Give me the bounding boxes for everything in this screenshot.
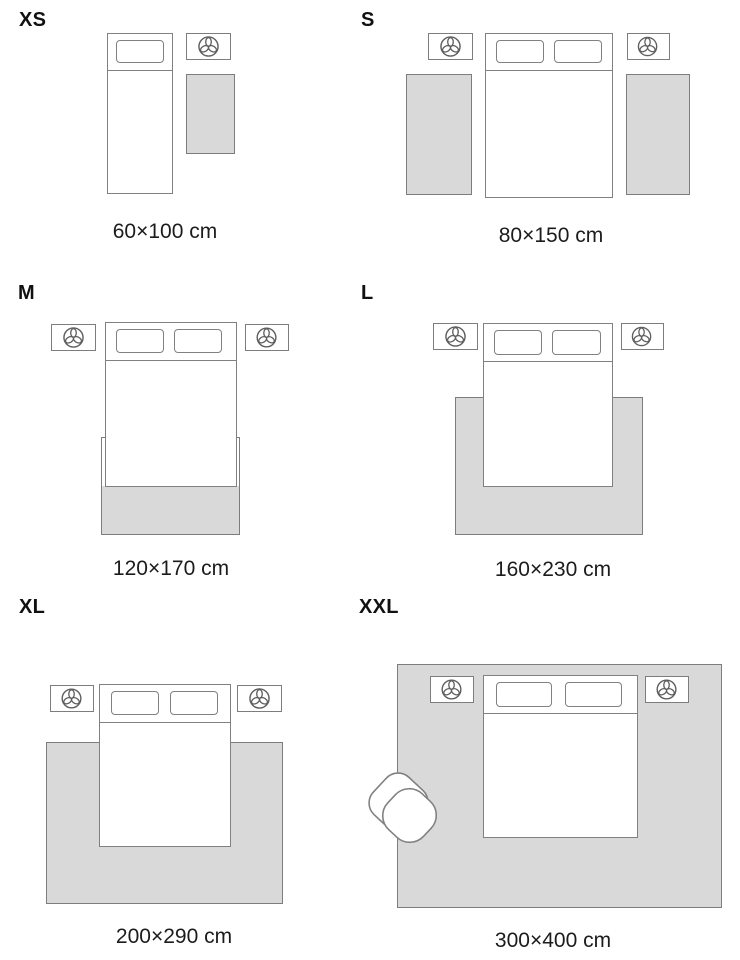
- bed-headboard: [106, 323, 236, 361]
- nightstand: [50, 685, 94, 712]
- pillow: [554, 40, 602, 63]
- dimension-label-xxl: 300×400 cm: [453, 929, 653, 952]
- rug-s-right: [626, 74, 690, 195]
- plant-icon: [622, 323, 663, 350]
- dimension-label-xl: 200×290 cm: [74, 925, 274, 948]
- rug-size-guide: XS 60×100 cm S 80×150 cm: [0, 0, 740, 960]
- dimension-label-l: 160×230 cm: [453, 558, 653, 581]
- size-label-m: M: [18, 281, 35, 305]
- bed-headboard: [486, 34, 612, 71]
- plant-icon: [51, 685, 93, 712]
- bed-headboard: [484, 676, 637, 714]
- pillow: [116, 329, 164, 353]
- pillow: [565, 682, 622, 707]
- bed-double: [105, 322, 237, 487]
- armchair: [352, 756, 452, 856]
- rug-s-left: [406, 74, 472, 195]
- dimension-label-m: 120×170 cm: [71, 557, 271, 580]
- pillow: [496, 682, 552, 707]
- pillow: [111, 691, 159, 715]
- dimension-label-s: 80×150 cm: [451, 224, 651, 247]
- pillow: [496, 40, 544, 63]
- plant-icon: [431, 676, 473, 703]
- plant-icon: [187, 33, 230, 60]
- plant-icon: [429, 33, 472, 60]
- bed-double: [485, 33, 613, 198]
- nightstand: [627, 33, 670, 60]
- nightstand: [428, 33, 473, 60]
- nightstand: [645, 676, 689, 703]
- bed-double: [483, 675, 638, 838]
- bed-double: [99, 684, 231, 847]
- size-label-l: L: [361, 281, 374, 305]
- pillow: [494, 330, 542, 355]
- dimension-label-xs: 60×100 cm: [65, 220, 265, 243]
- bed-headboard: [484, 324, 612, 362]
- pillow: [116, 40, 164, 63]
- nightstand: [51, 324, 96, 351]
- plant-icon: [646, 676, 688, 703]
- bed-headboard: [108, 34, 172, 71]
- bed-double: [483, 323, 613, 487]
- pillow: [170, 691, 218, 715]
- nightstand: [245, 324, 289, 351]
- nightstand: [430, 676, 474, 703]
- plant-icon: [246, 324, 288, 351]
- nightstand: [237, 685, 282, 712]
- size-label-s: S: [361, 8, 375, 32]
- rug-xs: [186, 74, 235, 154]
- nightstand: [186, 33, 231, 60]
- pillow: [174, 329, 222, 353]
- nightstand: [433, 323, 478, 350]
- plant-icon: [434, 323, 477, 350]
- nightstand: [621, 323, 664, 350]
- rug-visible-part: [102, 486, 239, 534]
- plant-icon: [628, 33, 669, 60]
- plant-icon: [238, 685, 281, 712]
- plant-icon: [52, 324, 95, 351]
- pillow: [552, 330, 601, 355]
- size-label-xs: XS: [19, 8, 46, 32]
- size-label-xl: XL: [19, 595, 45, 619]
- bed-headboard: [100, 685, 230, 723]
- size-label-xxl: XXL: [359, 595, 399, 619]
- bed-single: [107, 33, 173, 194]
